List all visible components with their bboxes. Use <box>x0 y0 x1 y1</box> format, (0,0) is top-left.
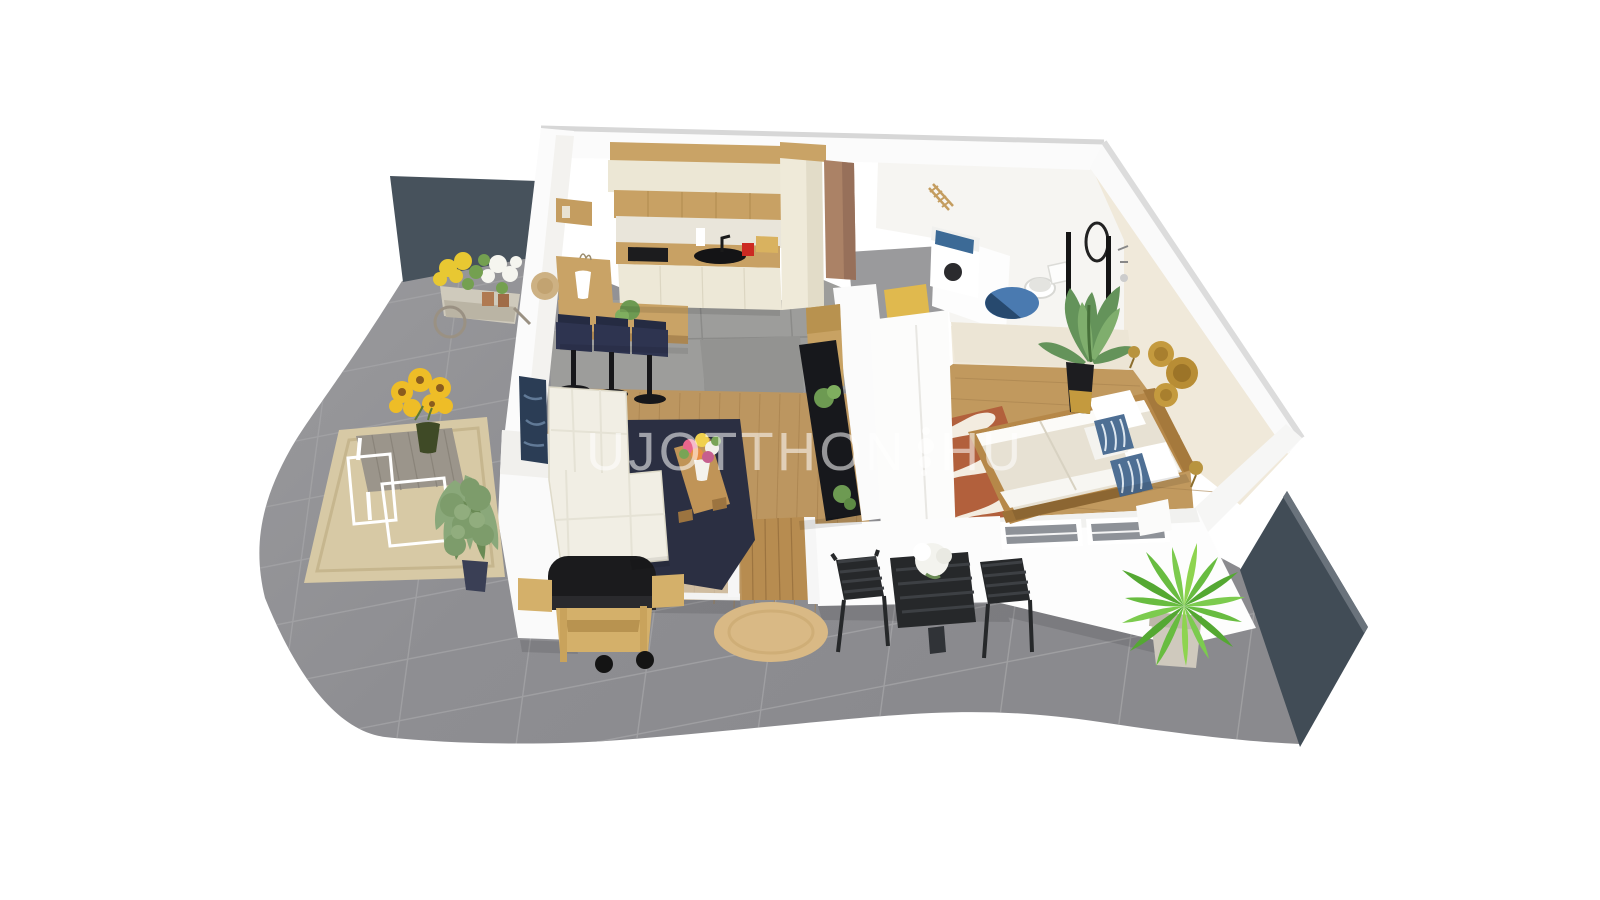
svg-text:UJOTTHON: UJOTTHON <box>586 422 907 482</box>
svg-text:HU: HU <box>940 422 1024 482</box>
